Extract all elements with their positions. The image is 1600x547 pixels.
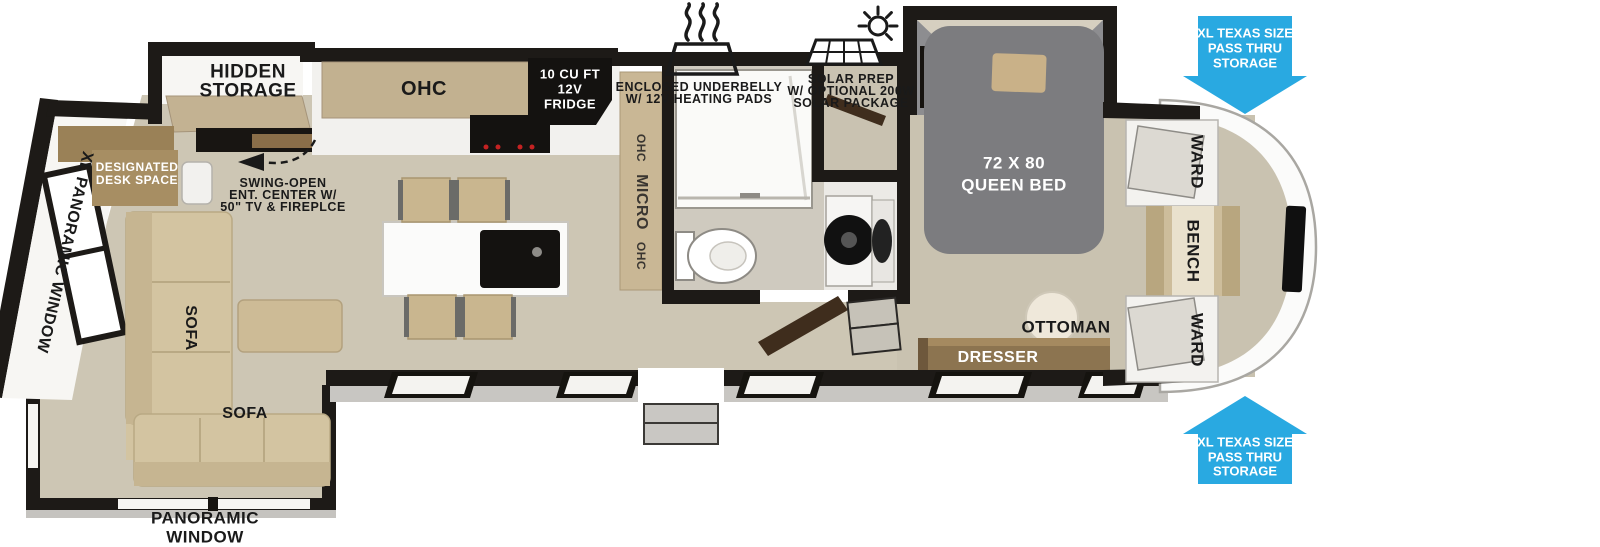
ohc-label: OHC <box>401 79 447 99</box>
hidden-storage-label-2: STORAGE <box>199 82 296 101</box>
sofa-rear-label: SOFA <box>182 305 198 351</box>
bath-bottom-wall-left <box>662 290 760 304</box>
underbelly-label-2: W/ 12V HEATING PADS <box>626 93 773 106</box>
pass-thru-bottom-label-1: XL TEXAS SIZE <box>1197 436 1293 449</box>
ward-bottom-label: WARD <box>1189 313 1206 367</box>
sofa-front-label: SOFA <box>222 406 268 422</box>
pass-thru-top-label-3: STORAGE <box>1213 57 1277 70</box>
queen-bed <box>924 26 1104 254</box>
slideout-side-window <box>28 404 38 468</box>
micro-label: MICRO <box>633 174 649 230</box>
kitchen-island <box>383 222 568 296</box>
pass-thru-bottom-label-3: STORAGE <box>1213 465 1277 478</box>
entry-door <box>638 368 724 444</box>
ohc-lower-label: OHC <box>635 242 647 270</box>
hidden-storage-label-1: HIDDEN <box>210 63 286 82</box>
faucet <box>532 247 542 257</box>
closet-bottom-wall <box>812 170 897 182</box>
desk-chair <box>182 162 212 204</box>
panoramic-window-label-1: PANORAMIC <box>151 510 259 527</box>
pillow <box>991 53 1046 93</box>
ward-top-label: WARD <box>1189 135 1206 189</box>
fridge-label-1: 10 CU FT <box>540 68 600 81</box>
bedroom-steps <box>847 298 900 355</box>
toilet <box>676 229 756 283</box>
queen-bed-label-1: 72 X 80 <box>983 155 1045 172</box>
rv-floorplan-diagram: HIDDEN STORAGE OHC 10 CU FT 12V FRIDGE E… <box>0 0 1600 547</box>
dresser-label: DRESSER <box>958 350 1039 366</box>
island-sink <box>480 230 560 288</box>
panoramic-window-label-2: WINDOW <box>166 529 244 546</box>
solar-label-3: SOLAR PACKAGE <box>793 97 908 110</box>
chaise-ottoman <box>238 300 342 352</box>
washer-dryer <box>824 182 897 290</box>
desk-label-2: DESK SPACE <box>96 174 178 186</box>
desk-label-1: DESIGNATED <box>96 161 179 173</box>
ottoman-label: OTTOMAN <box>1021 319 1110 336</box>
fridge-label-2: 12V <box>558 83 583 96</box>
bench-label: BENCH <box>1185 220 1202 283</box>
pass-thru-top-label-1: XL TEXAS SIZE <box>1197 27 1293 40</box>
pass-thru-bottom-label-2: PASS THRU <box>1208 451 1282 464</box>
ent-center-label-3: 50" TV & FIREPLCE <box>220 201 346 214</box>
pass-thru-top-label-2: PASS THRU <box>1208 42 1282 55</box>
queen-bed-label-2: QUEEN BED <box>961 177 1067 194</box>
ohc-upper-label: OHC <box>635 134 647 162</box>
fridge-label-3: FRIDGE <box>544 98 596 111</box>
